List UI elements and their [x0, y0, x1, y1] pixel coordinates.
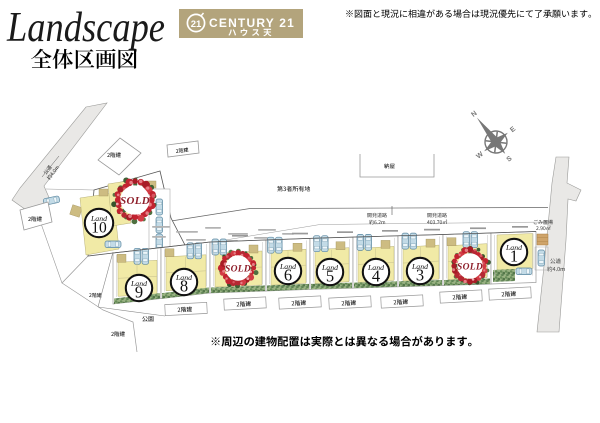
- svg-text:SOLD: SOLD: [120, 195, 150, 207]
- svg-text:8: 8: [180, 277, 188, 296]
- svg-text:1: 1: [510, 247, 518, 266]
- svg-text:SOLD: SOLD: [225, 264, 251, 274]
- svg-text:6: 6: [284, 266, 292, 285]
- svg-text:4: 4: [372, 267, 380, 286]
- svg-text:5: 5: [326, 267, 334, 286]
- svg-text:3: 3: [416, 266, 424, 285]
- svg-text:Landscape: Landscape: [6, 5, 165, 51]
- svg-text:SOLD: SOLD: [457, 262, 483, 272]
- svg-text:9: 9: [135, 283, 143, 302]
- svg-text:10: 10: [91, 220, 107, 237]
- svg-text:CENTURY 21: CENTURY 21: [209, 16, 295, 30]
- svg-text:21: 21: [191, 19, 202, 30]
